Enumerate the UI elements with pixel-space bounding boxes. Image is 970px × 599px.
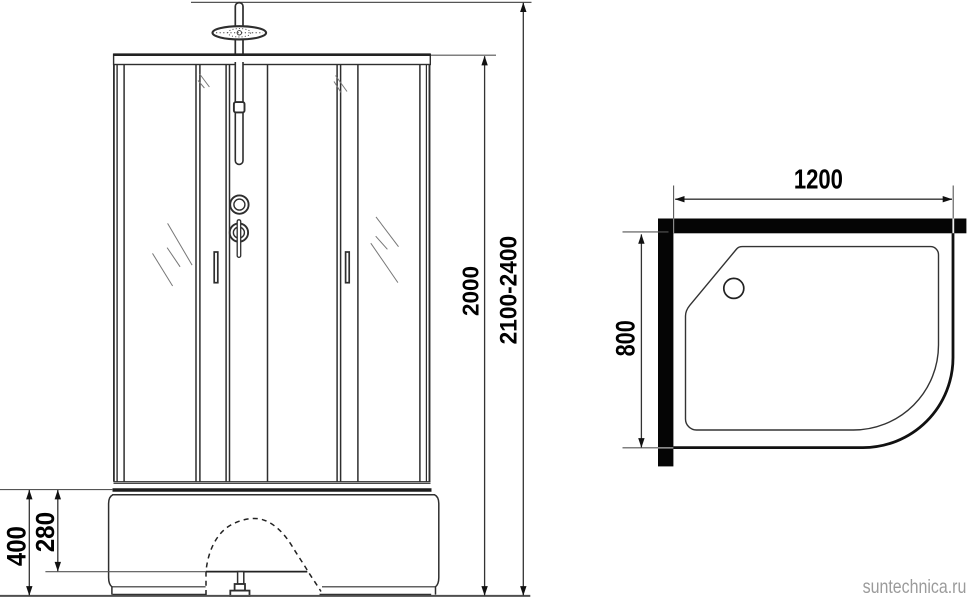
svg-text:280: 280 xyxy=(31,512,60,552)
svg-text:1200: 1200 xyxy=(794,164,843,195)
svg-text:2000: 2000 xyxy=(457,266,484,316)
svg-text:800: 800 xyxy=(612,320,642,356)
svg-text:400: 400 xyxy=(2,526,31,566)
svg-text:suntechnica.ru: suntechnica.ru xyxy=(863,576,967,598)
svg-text:2100-2400: 2100-2400 xyxy=(495,236,522,345)
